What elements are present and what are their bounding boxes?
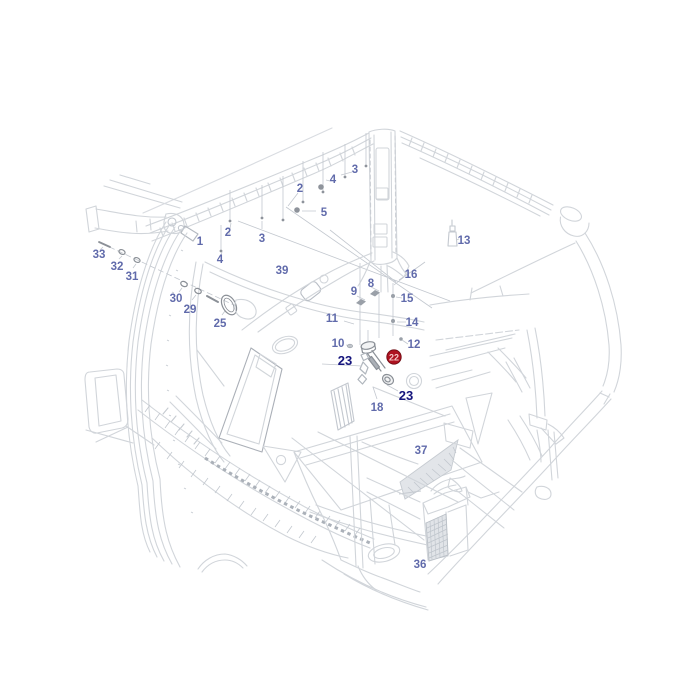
svg-text:15: 15 [401,293,414,305]
svg-text:37: 37 [415,445,428,457]
svg-text:2: 2 [297,183,303,195]
svg-text:13: 13 [458,235,471,247]
svg-text:8: 8 [368,278,375,290]
svg-text:3: 3 [259,233,265,245]
svg-text:29: 29 [184,304,197,316]
svg-text:1: 1 [197,236,204,248]
svg-text:4: 4 [330,174,337,186]
svg-text:22: 22 [389,353,399,363]
svg-text:16: 16 [405,269,418,281]
svg-text:11: 11 [326,313,339,325]
svg-text:25: 25 [214,318,227,330]
svg-text:23: 23 [399,388,413,403]
svg-text:39: 39 [276,265,289,277]
svg-text:10: 10 [332,338,345,350]
svg-text:32: 32 [111,261,124,273]
svg-text:31: 31 [126,271,139,283]
svg-text:9: 9 [351,286,357,298]
svg-text:4: 4 [217,254,224,266]
svg-text:14: 14 [406,317,419,329]
svg-text:12: 12 [408,339,421,351]
svg-text:3: 3 [352,164,358,176]
svg-text:18: 18 [371,402,384,414]
svg-text:2: 2 [225,227,231,239]
svg-text:5: 5 [321,207,328,219]
svg-text:30: 30 [170,293,183,305]
svg-text:33: 33 [93,249,106,261]
svg-text:23: 23 [338,353,352,368]
svg-text:36: 36 [414,559,427,571]
